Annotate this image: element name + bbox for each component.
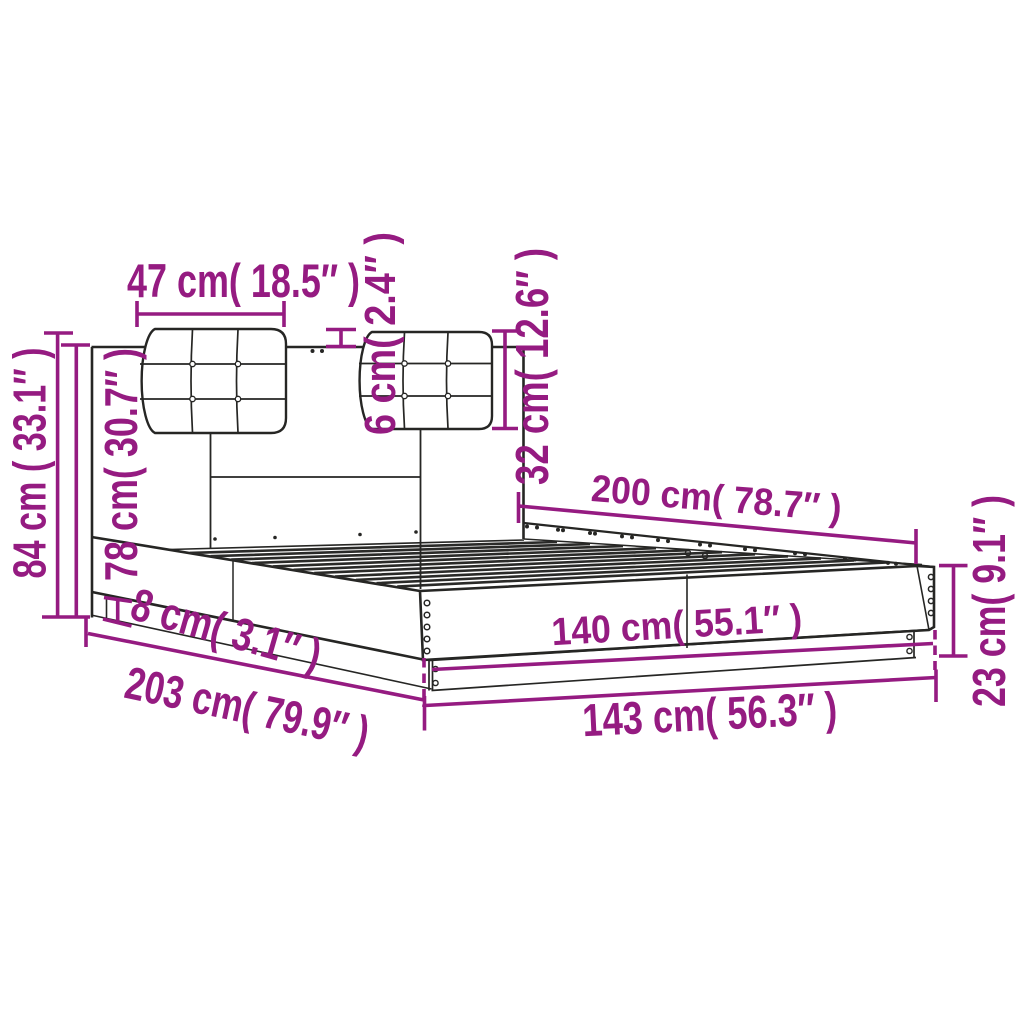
svg-text:84 cm ( 33.1″ ): 84 cm ( 33.1″ ): [4, 348, 56, 579]
svg-text:23 cm( 9.1″ ): 23 cm( 9.1″ ): [963, 495, 1015, 707]
svg-text:47 cm( 18.5″ ): 47 cm( 18.5″ ): [127, 254, 360, 307]
svg-text:78 cm( 30.7″ ): 78 cm( 30.7″ ): [95, 348, 147, 581]
svg-text:6 cm( 2.4″ ): 6 cm( 2.4″ ): [356, 232, 405, 435]
svg-text:32 cm( 12.6″ ): 32 cm( 12.6″ ): [506, 248, 558, 485]
